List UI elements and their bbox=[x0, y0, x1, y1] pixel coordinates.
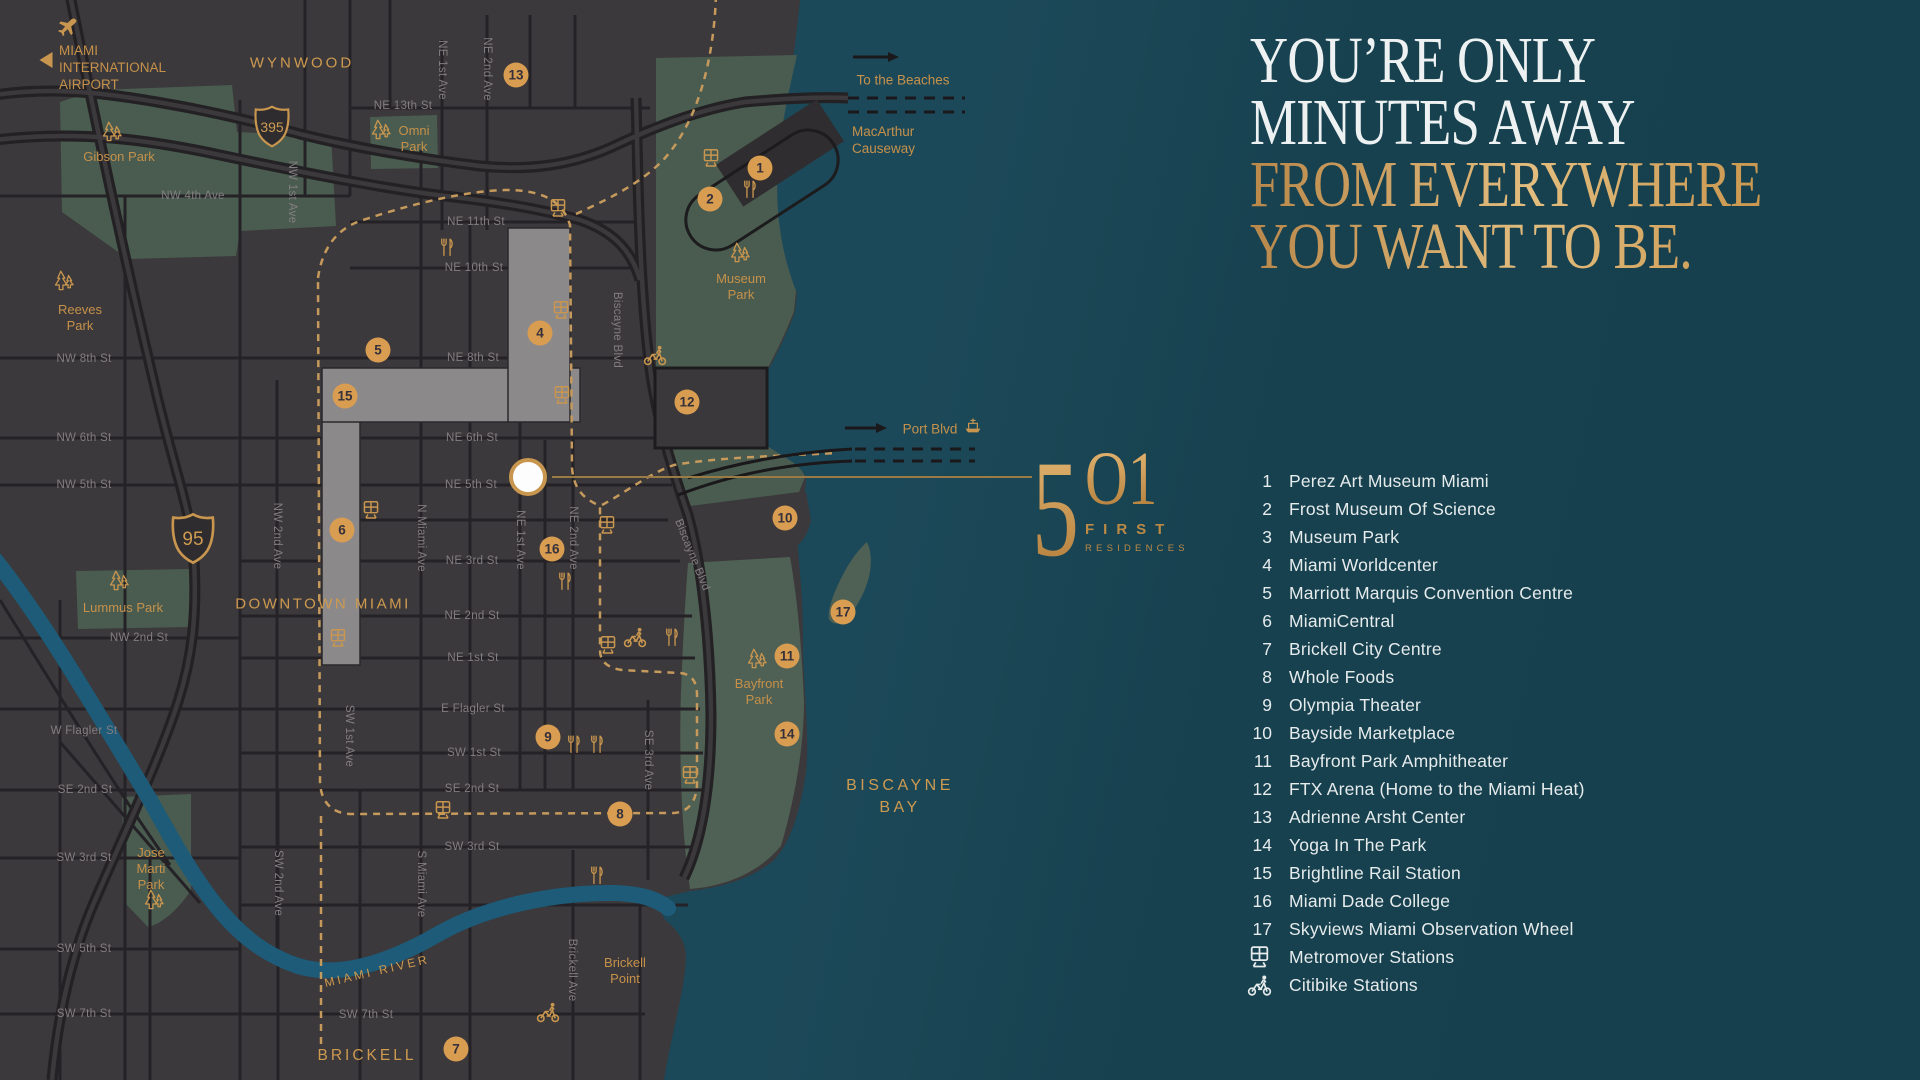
street-label: SW 1st Ave bbox=[343, 705, 355, 767]
legend-number: 10 bbox=[1230, 723, 1272, 744]
legend-number: 11 bbox=[1230, 751, 1272, 772]
legend-item: 1Perez Art Museum Miami bbox=[1230, 467, 1585, 495]
logo-numeral-01: O1 bbox=[1085, 452, 1166, 507]
legend-label: MiamiCentral bbox=[1289, 611, 1394, 632]
street-label: NE 6th St bbox=[446, 432, 498, 444]
park-label: Lummus Park bbox=[83, 600, 163, 616]
map-marker-14: 14 bbox=[775, 722, 800, 747]
street-label: NE 2nd St bbox=[444, 610, 499, 622]
park-label: OmniPark bbox=[398, 123, 429, 155]
street-label: Biscayne Blvd bbox=[611, 292, 623, 368]
legend-number: 6 bbox=[1230, 611, 1272, 632]
legend-number: 12 bbox=[1230, 779, 1272, 800]
street-label: NE 3rd St bbox=[446, 555, 499, 567]
train-icon bbox=[552, 385, 573, 411]
street-label: Biscayne Blvd bbox=[672, 517, 712, 592]
map-marker-4: 4 bbox=[528, 321, 553, 346]
legend-number: 2 bbox=[1230, 499, 1272, 520]
legend-item: 6MiamiCentral bbox=[1230, 607, 1585, 635]
legend-number: 4 bbox=[1230, 555, 1272, 576]
legend-label: Museum Park bbox=[1289, 527, 1399, 548]
ship-icon bbox=[963, 415, 984, 441]
legend-item: 16Miami Dade College bbox=[1230, 887, 1585, 915]
map-marker-10: 10 bbox=[773, 506, 798, 531]
legend-label: Frost Museum Of Science bbox=[1289, 499, 1496, 520]
street-label: N Miami Ave bbox=[415, 504, 427, 572]
direction-label: Port Blvd bbox=[903, 421, 958, 438]
street-label: SW 3rd St bbox=[444, 841, 499, 853]
area-label: BISCAYNE bbox=[846, 777, 954, 795]
logo-numeral-5: 5 bbox=[1032, 452, 1079, 565]
legend-item: 4Miami Worldcenter bbox=[1230, 551, 1585, 579]
map-marker-6: 6 bbox=[330, 518, 355, 543]
airport-direction-icon bbox=[40, 52, 53, 68]
train-icon bbox=[361, 500, 382, 526]
tree-icon bbox=[106, 569, 132, 600]
legend-number: 3 bbox=[1230, 527, 1272, 548]
street-label: NW 6th St bbox=[56, 432, 111, 444]
logo-residences: RESIDENCES bbox=[1085, 543, 1189, 554]
legend-list: 1Perez Art Museum Miami2Frost Museum Of … bbox=[1230, 467, 1585, 999]
food-icon bbox=[437, 237, 458, 263]
train-icon bbox=[548, 198, 569, 224]
map-marker-16: 16 bbox=[540, 537, 565, 562]
map-marker-7: 7 bbox=[444, 1037, 469, 1062]
street-label: SW 7th St bbox=[339, 1009, 393, 1021]
food-icon bbox=[555, 571, 576, 597]
tree-icon bbox=[141, 888, 167, 919]
legend-label: Bayside Marketplace bbox=[1289, 723, 1455, 744]
direction-label: MacArthurCauseway bbox=[852, 123, 915, 157]
info-panel: YOU’RE ONLYMINUTES AWAYFROM EVERYWHEREYO… bbox=[1230, 0, 1920, 1080]
legend-item: 14Yoga In The Park bbox=[1230, 831, 1585, 859]
tree-icon bbox=[744, 647, 770, 678]
street-label: SW 7th St bbox=[57, 1008, 111, 1020]
street-label: NW 2nd Ave bbox=[271, 503, 283, 570]
legend-item: 11Bayfront Park Amphitheater bbox=[1230, 747, 1585, 775]
train-icon bbox=[597, 515, 618, 541]
street-label: E Flagler St bbox=[441, 703, 505, 715]
legend-number: 8 bbox=[1230, 667, 1272, 688]
legend-label: Marriott Marquis Convention Centre bbox=[1289, 583, 1573, 604]
svg-text:95: 95 bbox=[182, 529, 203, 550]
street-label: NE 10th St bbox=[445, 262, 504, 274]
direction-label: To the Beaches bbox=[856, 72, 949, 89]
street-label: NE 11th St bbox=[447, 216, 505, 228]
map-marker-2: 2 bbox=[698, 187, 723, 212]
title-line: FROM EVERYWHERE bbox=[1250, 154, 1762, 216]
legend-label: Brightline Rail Station bbox=[1289, 863, 1461, 884]
legend-item: 5Marriott Marquis Convention Centre bbox=[1230, 579, 1585, 607]
legend-number: 16 bbox=[1230, 891, 1272, 912]
street-label: SW 5th St bbox=[57, 943, 111, 955]
legend-label: Yoga In The Park bbox=[1289, 835, 1426, 856]
map-marker-13: 13 bbox=[504, 63, 529, 88]
street-label: NE 8th St bbox=[447, 352, 499, 364]
legend-label: Citibike Stations bbox=[1289, 975, 1418, 996]
street-label: NW 4th Ave bbox=[161, 190, 225, 202]
train-icon bbox=[701, 148, 722, 174]
park-label: Gibson Park bbox=[83, 149, 155, 165]
park-label: MuseumPark bbox=[716, 271, 766, 303]
legend-item: Citibike Stations bbox=[1230, 971, 1585, 999]
park-label: BayfrontPark bbox=[735, 676, 783, 708]
train-icon bbox=[328, 628, 349, 654]
street-label: SW 2nd Ave bbox=[272, 850, 284, 916]
area-label: WYNWOOD bbox=[250, 55, 354, 72]
legend-number: 14 bbox=[1230, 835, 1272, 856]
legend-item: 9Olympia Theater bbox=[1230, 691, 1585, 719]
area-label: BAY bbox=[879, 799, 920, 817]
train-icon bbox=[1230, 945, 1272, 970]
legend-number: 15 bbox=[1230, 863, 1272, 884]
food-icon bbox=[587, 734, 608, 760]
legend-label: Brickell City Centre bbox=[1289, 639, 1442, 660]
area-label: DOWNTOWN MIAMI bbox=[235, 596, 411, 613]
food-icon bbox=[740, 179, 761, 205]
legend-item: 3Museum Park bbox=[1230, 523, 1585, 551]
street-label: SW 3rd St bbox=[56, 852, 111, 864]
street-label: SE 2nd St bbox=[58, 784, 112, 796]
map-marker-17: 17 bbox=[831, 600, 856, 625]
street-label: NW 2nd St bbox=[110, 632, 168, 644]
highway-shield-95: 95 bbox=[171, 513, 215, 570]
park-label: BrickellPoint bbox=[604, 955, 646, 987]
food-icon bbox=[564, 734, 585, 760]
area-label: MIAMI RIVER bbox=[323, 952, 431, 990]
street-label: SW 1st St bbox=[447, 747, 501, 759]
map-marker-8: 8 bbox=[608, 802, 633, 827]
tree-icon bbox=[727, 241, 753, 272]
legend-item: Metromover Stations bbox=[1230, 943, 1585, 971]
legend-number: 5 bbox=[1230, 583, 1272, 604]
title-line: YOU’RE ONLY bbox=[1250, 30, 1762, 92]
bike-icon bbox=[643, 344, 667, 373]
street-label: Brickell Ave bbox=[566, 939, 578, 1002]
legend-number: 13 bbox=[1230, 807, 1272, 828]
park-label: JoseMartiPark bbox=[137, 845, 166, 893]
tree-icon bbox=[51, 269, 77, 300]
legend-number: 1 bbox=[1230, 471, 1272, 492]
train-icon bbox=[598, 635, 619, 661]
legend-label: FTX Arena (Home to the Miami Heat) bbox=[1289, 779, 1585, 800]
park-label: ReevesPark bbox=[58, 302, 102, 334]
map-marker-11: 11 bbox=[775, 644, 800, 669]
legend-item: 15Brightline Rail Station bbox=[1230, 859, 1585, 887]
legend-item: 13Adrienne Arsht Center bbox=[1230, 803, 1585, 831]
highway-shield-395: 395 bbox=[254, 105, 290, 154]
legend-item: 12FTX Arena (Home to the Miami Heat) bbox=[1230, 775, 1585, 803]
train-icon bbox=[551, 300, 572, 326]
legend-label: Perez Art Museum Miami bbox=[1289, 471, 1489, 492]
map-marker-15: 15 bbox=[333, 384, 358, 409]
street-label: SE 3rd Ave bbox=[642, 730, 654, 790]
street-label: NE 1st St bbox=[447, 652, 498, 664]
map-marker-12: 12 bbox=[675, 390, 700, 415]
legend-label: Whole Foods bbox=[1289, 667, 1394, 688]
street-label: SE 2nd St bbox=[445, 783, 499, 795]
residence-logo: 5 O1 FIRST RESIDENCES bbox=[1032, 452, 1189, 565]
legend-item: 17Skyviews Miami Observation Wheel bbox=[1230, 915, 1585, 943]
title-line: MINUTES AWAY bbox=[1250, 92, 1762, 154]
train-icon bbox=[433, 800, 454, 826]
legend-label: Miami Dade College bbox=[1289, 891, 1450, 912]
legend-label: Skyviews Miami Observation Wheel bbox=[1289, 919, 1574, 940]
tree-icon bbox=[99, 120, 125, 151]
bike-icon bbox=[1230, 973, 1272, 998]
legend-label: Metromover Stations bbox=[1289, 947, 1454, 968]
street-label: NE 2nd Ave bbox=[481, 37, 493, 101]
street-label: NE 1st Ave bbox=[514, 510, 526, 570]
page-title: YOU’RE ONLYMINUTES AWAYFROM EVERYWHEREYO… bbox=[1250, 30, 1762, 278]
legend-item: 8Whole Foods bbox=[1230, 663, 1585, 691]
train-icon bbox=[680, 765, 701, 791]
legend-item: 7Brickell City Centre bbox=[1230, 635, 1585, 663]
tree-icon bbox=[368, 118, 394, 149]
svg-text:395: 395 bbox=[260, 119, 284, 135]
street-label: NW 5th St bbox=[56, 479, 111, 491]
street-label: NW 1st Ave bbox=[286, 161, 298, 224]
logo-first: FIRST bbox=[1085, 521, 1189, 538]
legend-number: 9 bbox=[1230, 695, 1272, 716]
food-icon bbox=[587, 865, 608, 891]
street-label: NE 5th St bbox=[445, 479, 497, 491]
page: NE 13th StNW 4th AveNE 11th StNE 10th St… bbox=[0, 0, 1920, 1080]
map-marker-9: 9 bbox=[536, 725, 561, 750]
street-label: NE 1st Ave bbox=[436, 40, 448, 100]
legend-item: 2Frost Museum Of Science bbox=[1230, 495, 1585, 523]
legend-number: 7 bbox=[1230, 639, 1272, 660]
legend-label: Miami Worldcenter bbox=[1289, 555, 1438, 576]
legend-label: Bayfront Park Amphitheater bbox=[1289, 751, 1508, 772]
legend-item: 10Bayside Marketplace bbox=[1230, 719, 1585, 747]
legend-label: Adrienne Arsht Center bbox=[1289, 807, 1465, 828]
street-label: NW 8th St bbox=[56, 353, 111, 365]
legend-number: 17 bbox=[1230, 919, 1272, 940]
property-marker bbox=[509, 458, 547, 496]
area-label: BRICKELL bbox=[318, 1047, 417, 1065]
street-label: NE 13th St bbox=[374, 100, 433, 112]
street-label: S Miami Ave bbox=[415, 851, 427, 918]
bike-icon bbox=[536, 1001, 560, 1030]
street-label: W Flagler St bbox=[51, 725, 118, 737]
map-marker-5: 5 bbox=[366, 338, 391, 363]
street-label: NE 2nd Ave bbox=[567, 506, 579, 570]
map-marker-1: 1 bbox=[748, 156, 773, 181]
legend-label: Olympia Theater bbox=[1289, 695, 1421, 716]
airport-label: MIAMIINTERNATIONALAIRPORT bbox=[59, 42, 166, 93]
food-icon bbox=[662, 627, 683, 653]
title-line: YOU WANT TO BE. bbox=[1250, 216, 1762, 278]
bike-icon bbox=[623, 626, 647, 655]
